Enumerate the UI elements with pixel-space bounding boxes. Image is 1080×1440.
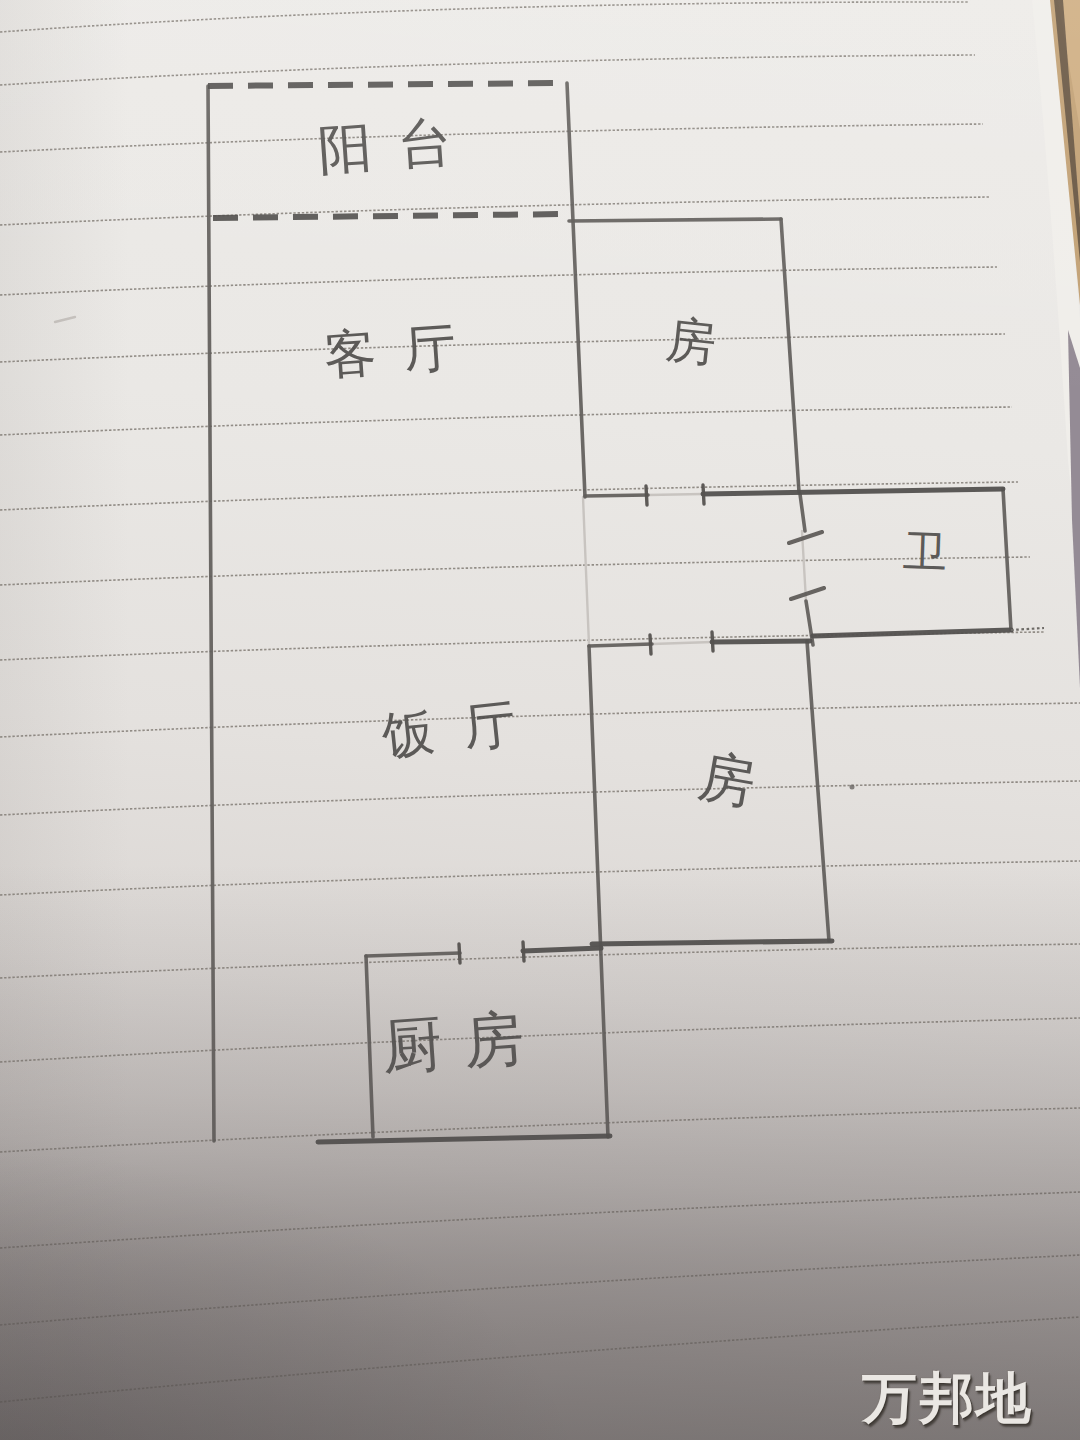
notebook-ruled-line [0, 267, 997, 295]
wall-line [208, 86, 214, 1141]
notebook-ruled-line [0, 1255, 1080, 1325]
door-tick-mark [703, 485, 704, 504]
balcony-dashed-wall [213, 214, 568, 218]
wall-line [807, 641, 829, 941]
wall-faint-line [652, 642, 712, 644]
pencil-speck [850, 785, 855, 790]
door-tick-mark [459, 944, 460, 963]
wall-line [567, 83, 585, 497]
wall-line [800, 494, 805, 531]
wall-line-bold [318, 1136, 610, 1142]
balcony-dashed-wall [208, 83, 567, 86]
wall-line [366, 953, 460, 956]
wall-faint-line [583, 497, 589, 645]
door-diagonal-mark [789, 532, 822, 543]
pencil-walls [55, 83, 1044, 1142]
notebook-ruled-line [0, 781, 1080, 815]
wall-line-bold [523, 948, 601, 951]
photo-corner [1032, 0, 1080, 688]
wall-faint-line [55, 317, 75, 322]
notebook-ruled-line [0, 557, 1030, 585]
notebook-ruled-line [0, 2, 968, 32]
notebook-ruled-line [0, 482, 1018, 510]
door-diagonal-mark [791, 588, 824, 599]
wall-line [1003, 489, 1011, 630]
wall-line [589, 646, 608, 1137]
back-pages [1068, 330, 1080, 688]
wall-line [366, 956, 373, 1137]
notebook-ruled-line [0, 124, 983, 152]
wall-faint-line [648, 494, 703, 495]
notebook-ruled-line [0, 1192, 1080, 1248]
notebook-ruled-line [0, 1108, 1080, 1152]
notebook-ruled-line [0, 55, 975, 85]
door-tick-mark [523, 942, 524, 961]
wall-line-bold [813, 630, 1011, 636]
wall-line [585, 495, 648, 496]
door-tick-mark [712, 632, 713, 651]
notebook-ruled-line [0, 197, 990, 225]
floor-plan-canvas [0, 0, 1080, 1440]
wall-line [569, 219, 781, 221]
notebook-floor-plan-photo: 阳台客厅房卫饭厅房厨房 万邦地产 [0, 0, 1080, 1440]
wall-line-bold [592, 941, 832, 944]
wall-line-bold [703, 489, 1003, 494]
notebook-ruled-line [0, 334, 1005, 362]
wall-line [781, 219, 799, 492]
notebook-ruled-line [0, 861, 1080, 895]
notebook-ruled-line [0, 703, 1080, 737]
watermark: 万邦地产 [862, 1362, 1080, 1440]
wall-line [589, 644, 652, 646]
notebook-ruled-line [0, 1018, 1080, 1062]
wall-dotted-extension [1011, 628, 1044, 630]
wall-line-bold [712, 641, 810, 642]
door-tick-mark [650, 635, 651, 654]
door-tick-mark [646, 486, 647, 505]
wall-faint-line [802, 531, 806, 601]
notebook-ruled-line [0, 407, 1012, 435]
wall-line [806, 601, 813, 645]
